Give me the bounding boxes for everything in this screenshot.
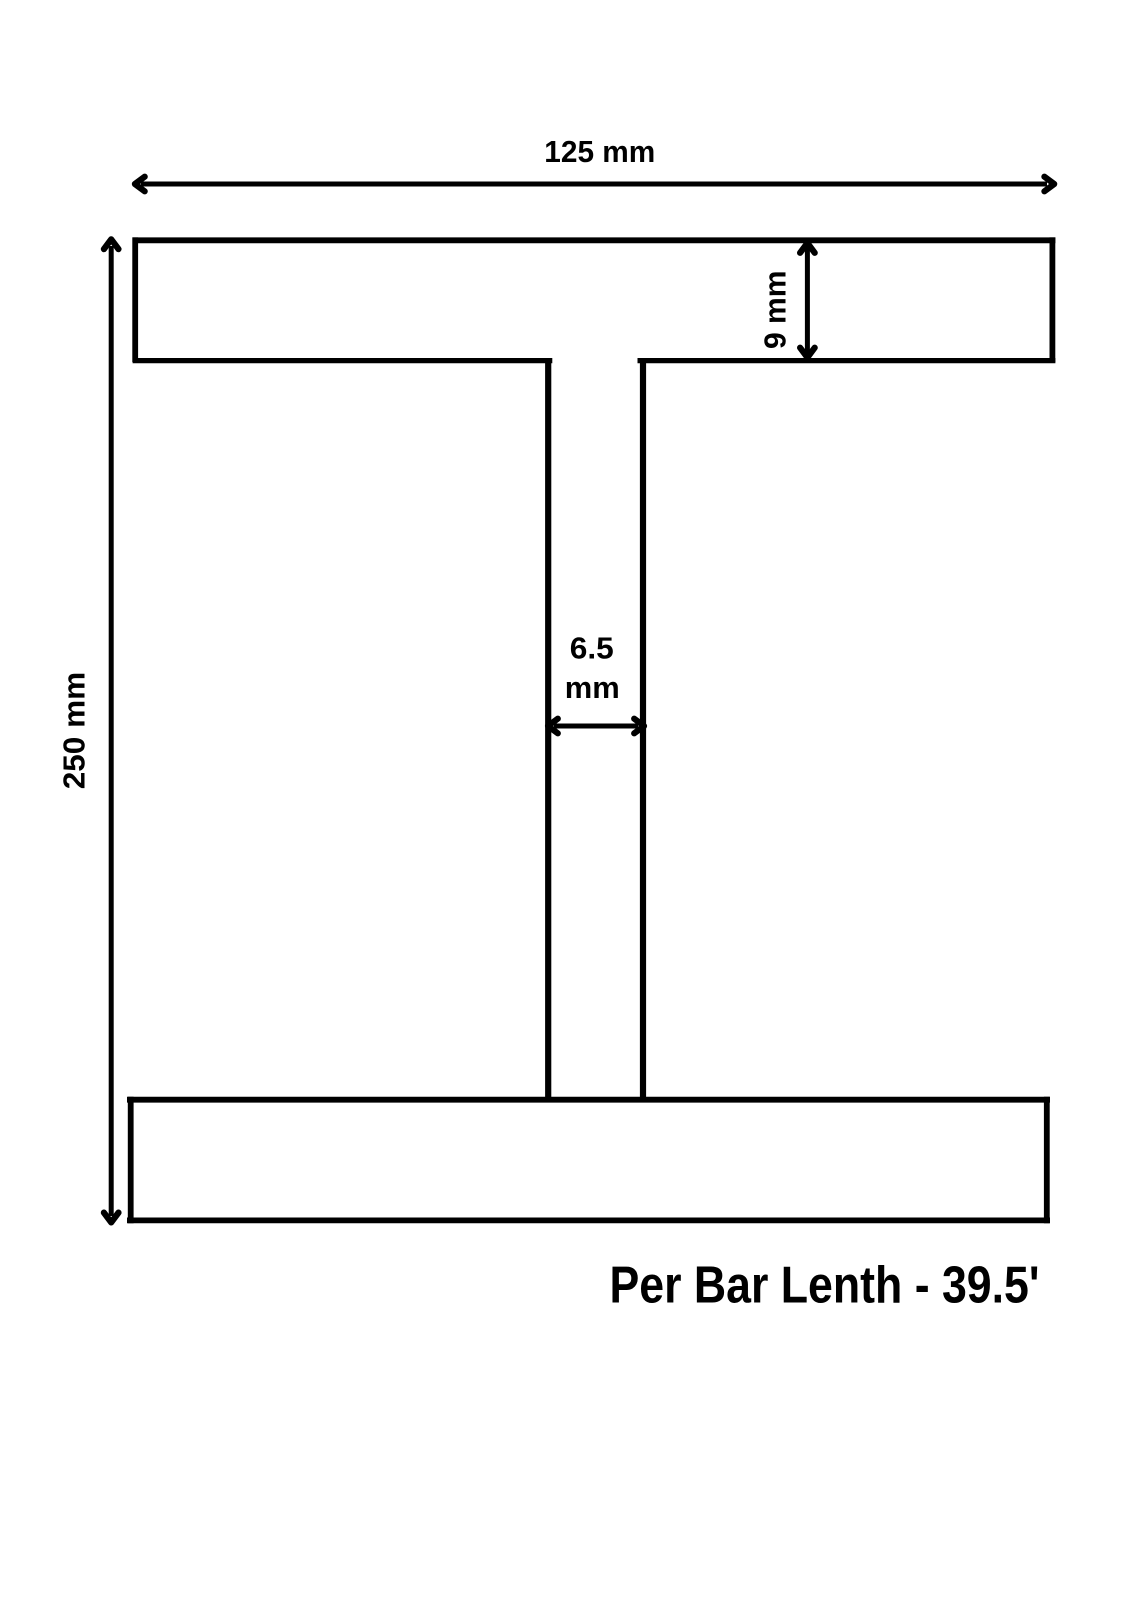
svg-text:Per Bar Lenth - 39.5': Per Bar Lenth - 39.5' <box>610 1257 1040 1315</box>
svg-text:125 mm: 125 mm <box>544 134 655 169</box>
svg-text:mm: mm <box>565 670 620 705</box>
svg-text:9 mm: 9 mm <box>758 271 793 350</box>
svg-text:6.5: 6.5 <box>570 630 614 665</box>
svg-text:250 mm: 250 mm <box>57 672 92 790</box>
